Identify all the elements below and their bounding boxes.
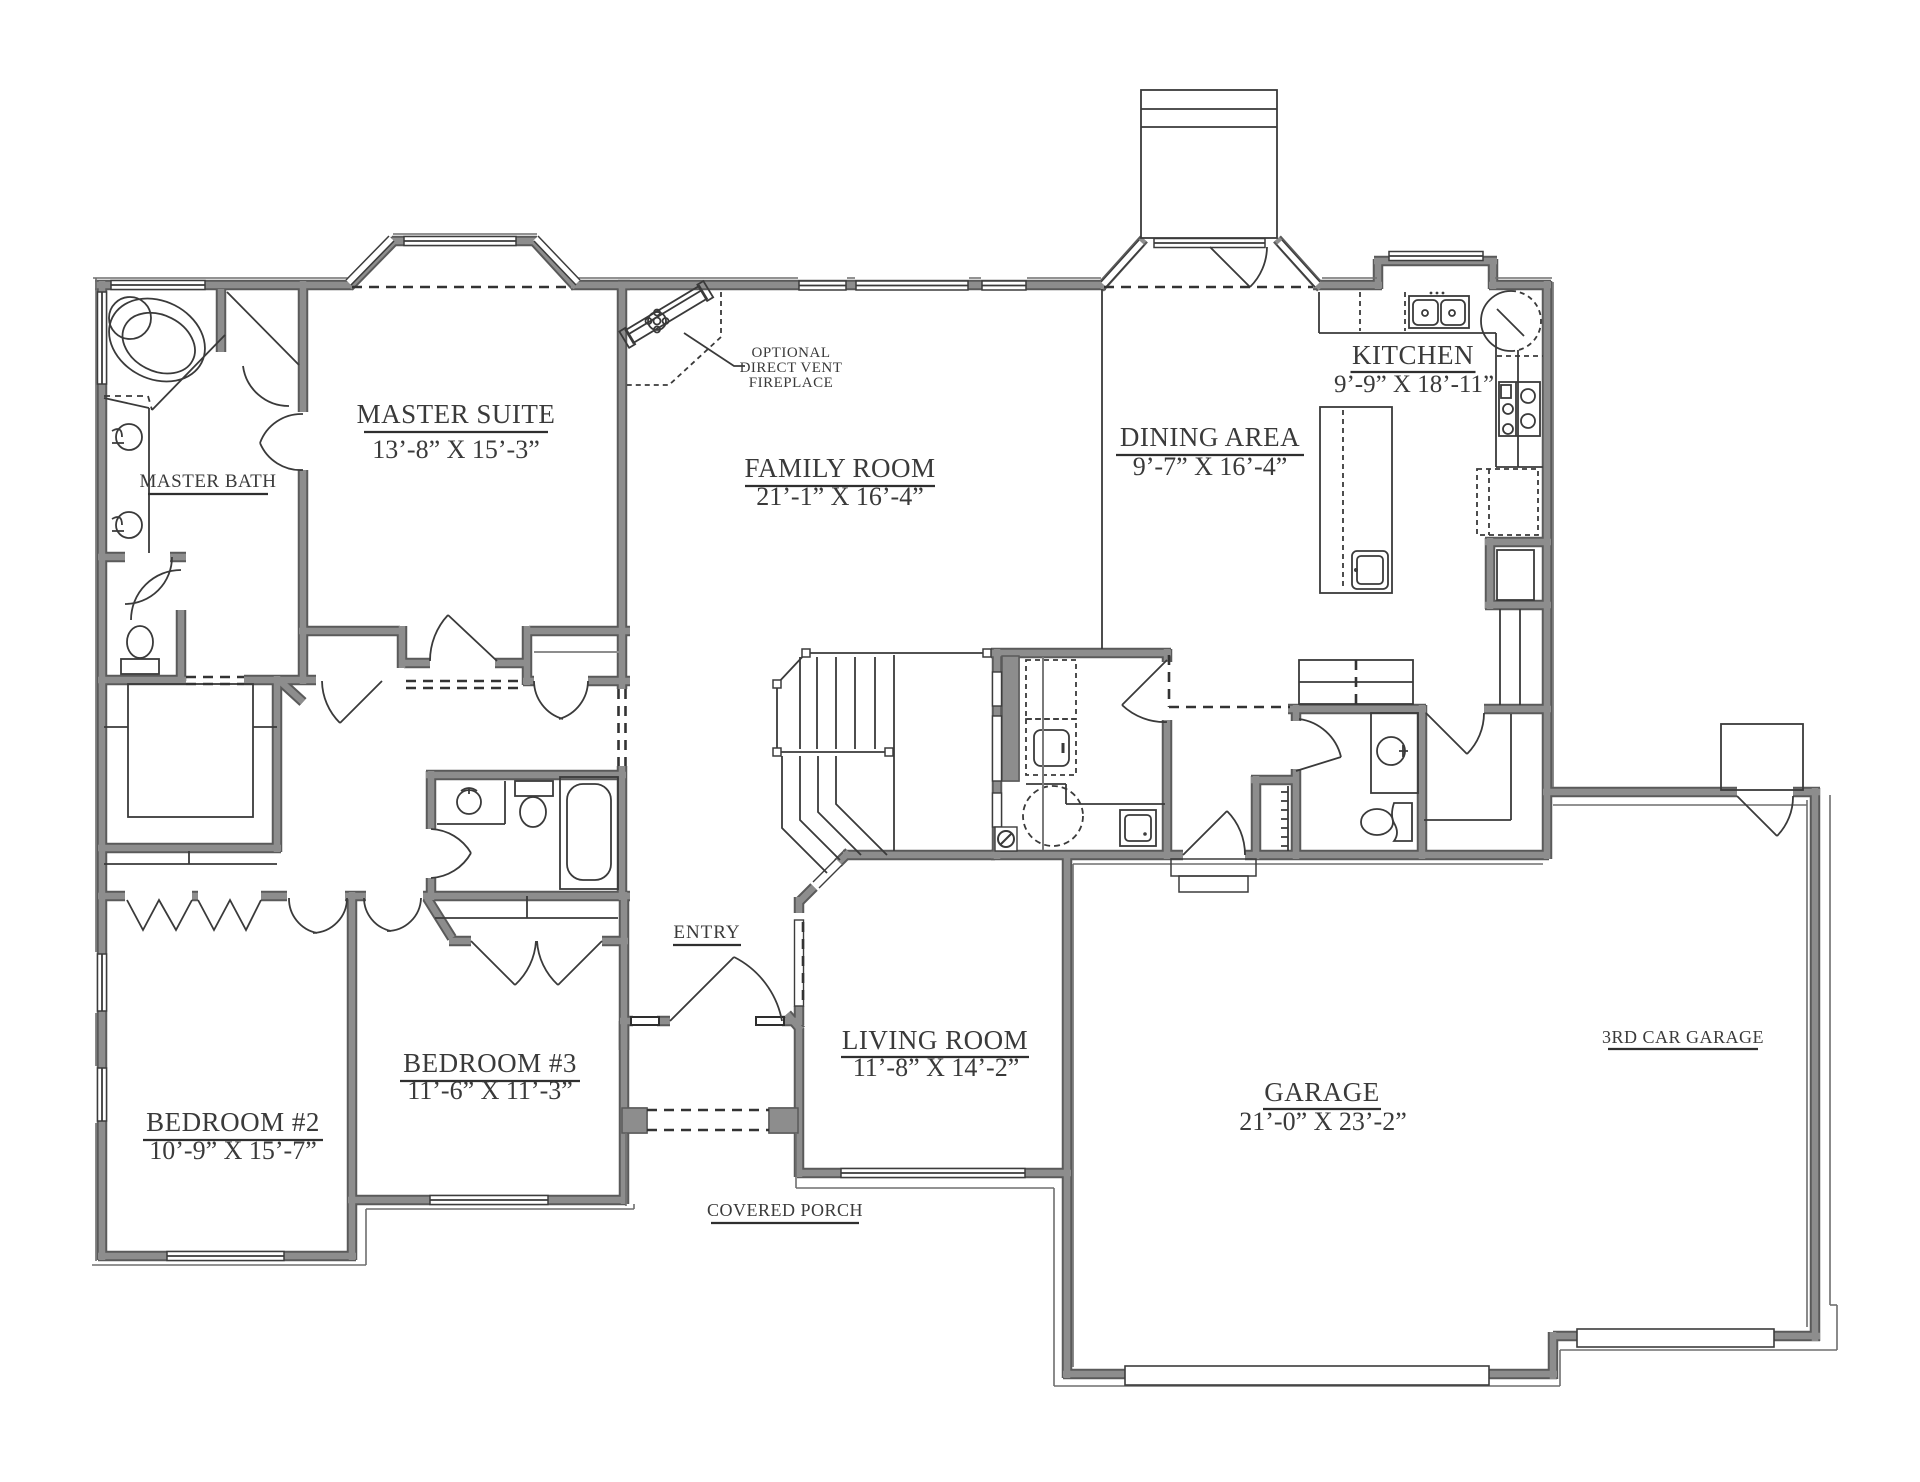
svg-text:9’-9” X 18’-11”: 9’-9” X 18’-11” bbox=[1334, 371, 1494, 398]
svg-text:OPTIONAL: OPTIONAL bbox=[752, 345, 831, 361]
svg-text:MASTER SUITE: MASTER SUITE bbox=[357, 399, 556, 429]
svg-text:COVERED PORCH: COVERED PORCH bbox=[707, 1200, 863, 1220]
svg-text:DIRECT VENT: DIRECT VENT bbox=[740, 360, 843, 376]
svg-text:KITCHEN: KITCHEN bbox=[1352, 340, 1474, 370]
svg-text:BEDROOM #3: BEDROOM #3 bbox=[403, 1048, 577, 1078]
svg-text:BEDROOM #2: BEDROOM #2 bbox=[146, 1107, 320, 1137]
svg-text:21’-1” X 16’-4”: 21’-1” X 16’-4” bbox=[756, 482, 924, 511]
svg-text:10’-9” X 15’-7”: 10’-9” X 15’-7” bbox=[149, 1136, 317, 1165]
svg-text:GARAGE: GARAGE bbox=[1264, 1077, 1380, 1107]
svg-text:11’-6” X 11’-3”: 11’-6” X 11’-3” bbox=[407, 1076, 573, 1105]
svg-text:13’-8” X 15’-3”: 13’-8” X 15’-3” bbox=[372, 435, 540, 464]
svg-text:LIVING ROOM: LIVING ROOM bbox=[842, 1025, 1028, 1055]
svg-text:9’-7” X 16’-4”: 9’-7” X 16’-4” bbox=[1133, 452, 1288, 481]
svg-text:21’-0” X 23’-2”: 21’-0” X 23’-2” bbox=[1239, 1107, 1407, 1136]
svg-text:DINING AREA: DINING AREA bbox=[1120, 422, 1300, 452]
svg-text:3RD CAR GARAGE: 3RD CAR GARAGE bbox=[1602, 1027, 1764, 1047]
svg-text:FAMILY ROOM: FAMILY ROOM bbox=[744, 453, 935, 483]
svg-text:MASTER BATH: MASTER BATH bbox=[140, 471, 277, 492]
svg-text:ENTRY: ENTRY bbox=[673, 922, 740, 943]
svg-text:11’-8” X 14’-2”: 11’-8” X 14’-2” bbox=[853, 1053, 1020, 1082]
svg-text:FIREPLACE: FIREPLACE bbox=[749, 375, 834, 391]
